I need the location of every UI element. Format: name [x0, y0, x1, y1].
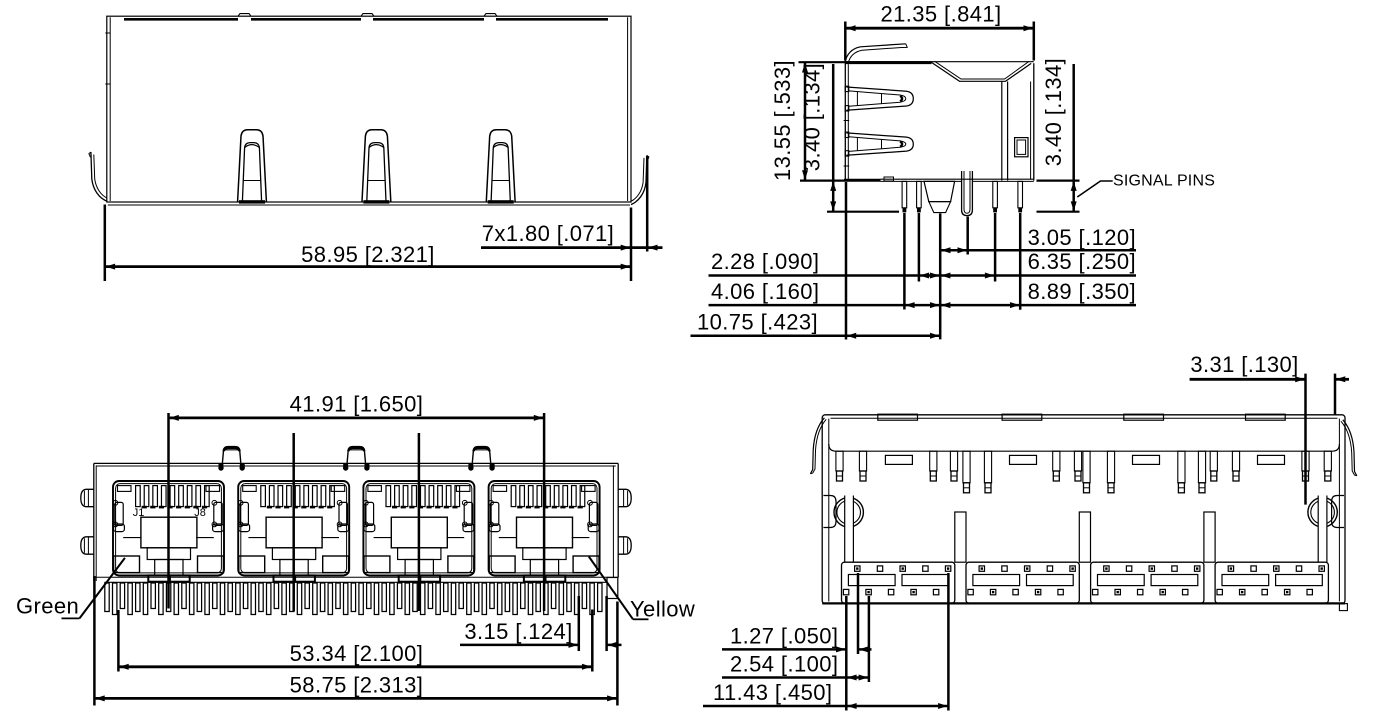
svg-text:41.91 [1.650]: 41.91 [1.650]: [290, 392, 424, 417]
svg-text:J1: J1: [133, 507, 145, 519]
svg-text:2.28 [.090]: 2.28 [.090]: [711, 249, 819, 274]
svg-text:11.43 [.450]: 11.43 [.450]: [713, 680, 832, 705]
svg-text:J8: J8: [194, 507, 206, 519]
svg-text:2.54 [.100]: 2.54 [.100]: [730, 652, 838, 677]
svg-text:3.15 [.124]: 3.15 [.124]: [464, 619, 572, 644]
svg-text:3.40 [.134]: 3.40 [.134]: [799, 63, 824, 171]
svg-text:SIGNAL PINS: SIGNAL PINS: [1113, 173, 1215, 190]
svg-text:8.89 [.350]: 8.89 [.350]: [1028, 279, 1136, 304]
svg-text:1.27 [.050]: 1.27 [.050]: [730, 624, 838, 649]
svg-text:21.35 [.841]: 21.35 [.841]: [880, 2, 1001, 27]
svg-text:53.34 [2.100]: 53.34 [2.100]: [290, 641, 424, 666]
svg-text:7x1.80 [.071]: 7x1.80 [.071]: [482, 221, 614, 246]
svg-text:58.75 [2.313]: 58.75 [2.313]: [290, 673, 424, 698]
svg-text:4.06 [.160]: 4.06 [.160]: [711, 279, 819, 304]
svg-text:Green: Green: [16, 594, 79, 619]
svg-text:3.40 [.134]: 3.40 [.134]: [1041, 58, 1066, 166]
svg-text:3.05 [.120]: 3.05 [.120]: [1028, 225, 1136, 250]
svg-text:13.55 [.533]: 13.55 [.533]: [770, 60, 795, 181]
svg-text:10.75 [.423]: 10.75 [.423]: [697, 309, 818, 334]
svg-text:6.35 [.250]: 6.35 [.250]: [1028, 249, 1136, 274]
svg-text:3.31 [.130]: 3.31 [.130]: [1190, 352, 1298, 377]
svg-text:58.95 [2.321]: 58.95 [2.321]: [301, 242, 435, 267]
svg-text:Yellow: Yellow: [630, 597, 695, 622]
